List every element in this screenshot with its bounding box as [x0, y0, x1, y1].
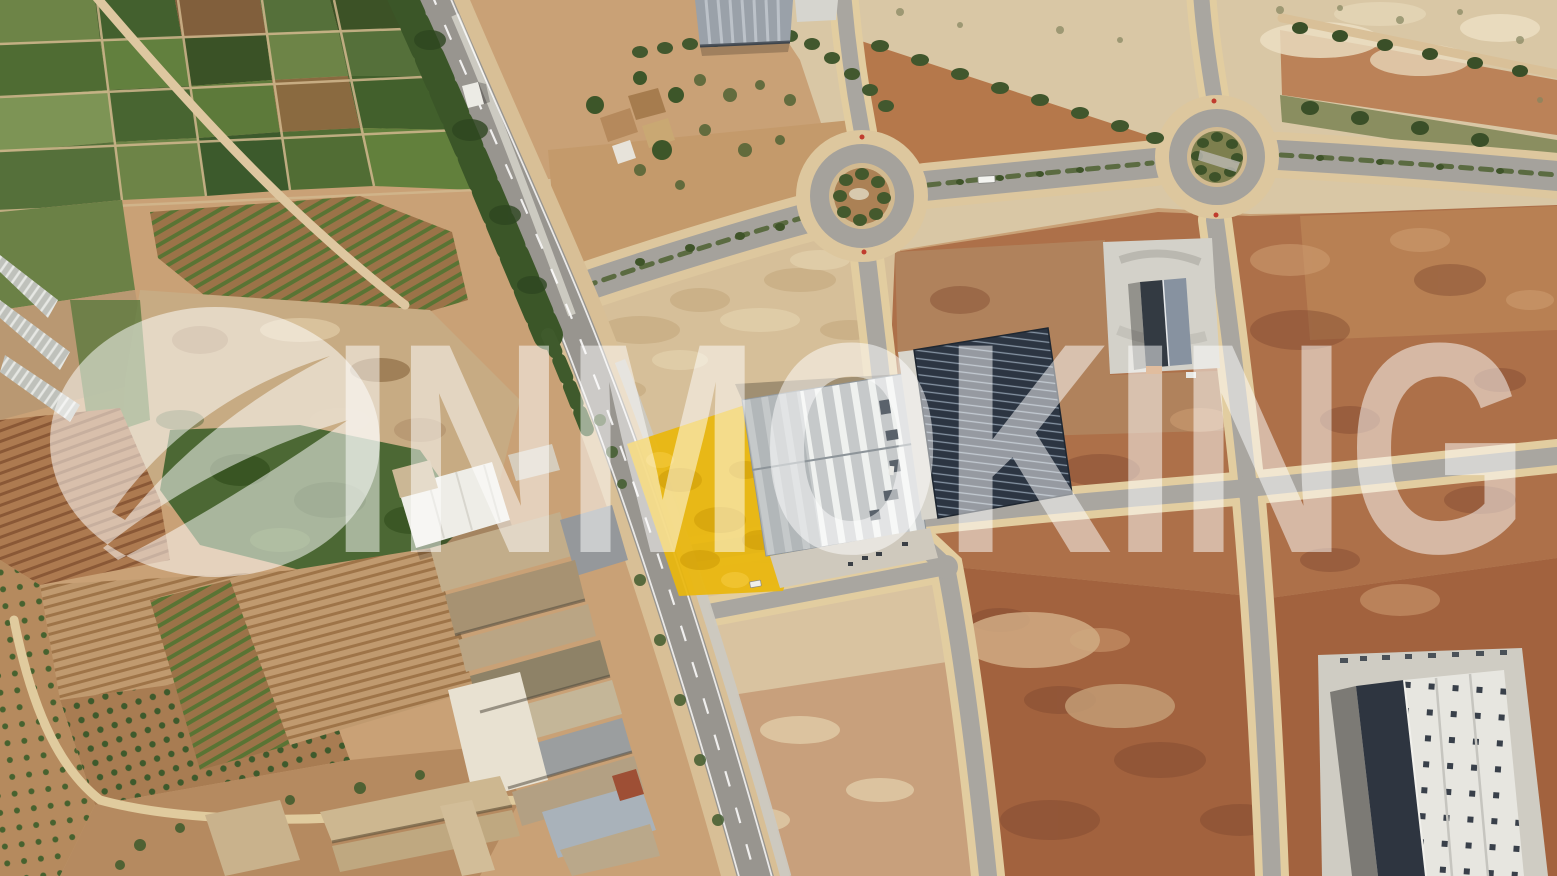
aerial-photo: INMOKING [0, 0, 1557, 876]
roundabout-east [1155, 95, 1279, 219]
concrete-pad-building [1103, 238, 1220, 374]
roundabout-west [796, 130, 928, 262]
large-industrial-building-southeast [1318, 648, 1548, 876]
solar-panel-roof-building [898, 328, 1072, 520]
